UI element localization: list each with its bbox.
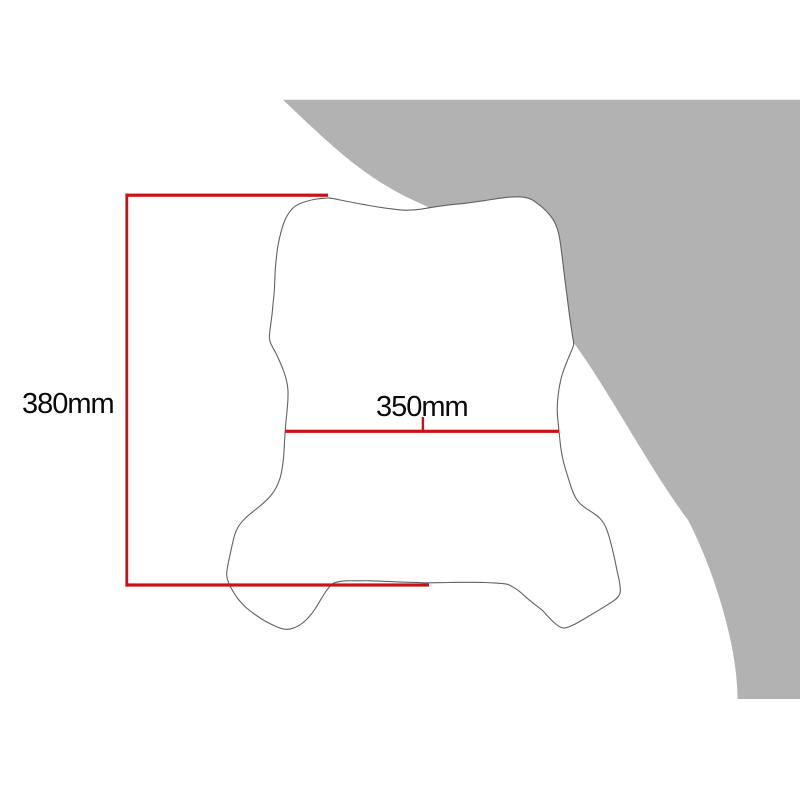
svg-text:380mm: 380mm xyxy=(22,388,114,420)
svg-text:350mm: 350mm xyxy=(376,391,468,423)
